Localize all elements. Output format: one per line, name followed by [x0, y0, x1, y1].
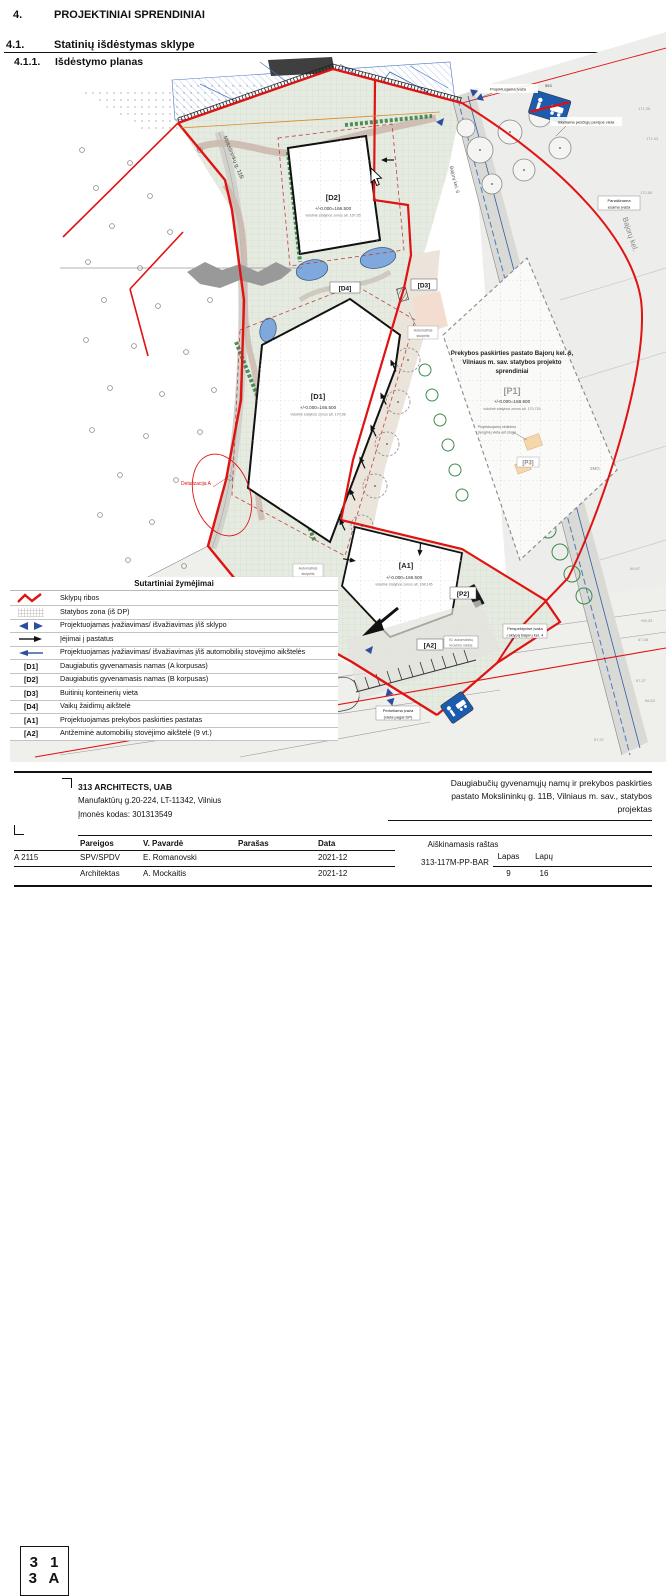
svg-text:[P3]: [P3]	[522, 461, 533, 467]
company-logo: 3 1 3 A	[20, 1546, 69, 1596]
svg-text:[D1]: [D1]	[311, 392, 326, 401]
doc-type: Aiškinamasis raštas	[390, 840, 536, 849]
svg-text:sprendiniai: sprendiniai	[495, 368, 528, 375]
svg-text:Projektuojama įvaža: Projektuojama įvaža	[490, 87, 527, 92]
doc-code: 313-117M-PP-BAR	[395, 858, 515, 867]
single-arrow-icon	[10, 649, 52, 657]
project-title-rule	[388, 820, 652, 821]
svg-text:+/-0.000=166.500: +/-0.000=166.500	[300, 405, 337, 410]
legend-item-d3: [D3] Buitinių konteinerių vieta	[10, 687, 338, 701]
svg-text:vidutinė statybos zonos alt. 1: vidutinė statybos zonos alt. 170,715	[483, 407, 540, 411]
project-title-line2: pastato Mokslininkų g. 11B, Vilniaus m. …	[330, 791, 652, 801]
logo-bracket	[14, 825, 24, 835]
lapu-value: 16	[527, 869, 561, 878]
title-block: 3 1 3 A 313 ARCHITECTS, UAB Manufaktūrų …	[0, 764, 666, 899]
svg-text:stulpelis: stulpelis	[417, 334, 430, 338]
svg-text:vidutinė statybos zonos alt. 1: vidutinė statybos zonos alt. 168,145	[375, 583, 432, 587]
company-name: 313 ARCHITECTS, UAB	[78, 782, 172, 792]
svg-text:Prekybos paskirties pastato Ba: Prekybos paskirties pastato Bajorų kel. …	[451, 350, 574, 357]
legend-title: Sutartiniai žymėjimai	[10, 577, 338, 591]
svg-text:66,53: 66,53	[645, 698, 656, 703]
project-title-line1: Daugiabučių gyvenamųjų namų ir prekybos …	[330, 778, 652, 788]
svg-text:[A1]: [A1]	[399, 561, 414, 570]
row1-pavarde: E. Romanovski	[143, 853, 197, 862]
svg-text:esama įvaža: esama įvaža	[608, 205, 631, 210]
svg-text:įrenginių vieta ant stogo: įrenginių vieta ant stogo	[478, 431, 516, 435]
logo-bracket	[62, 778, 72, 788]
legend-item-access: Projektuojamas įvažiavimas/ išvažiavimas…	[10, 620, 338, 634]
legend-item-d4: [D4] Vaikų žaidimų aikštelė	[10, 701, 338, 715]
row1-pareigos: SPV/SPDV	[80, 853, 120, 862]
project-title-line3: projektas	[330, 804, 652, 814]
lapu-label: Lapų	[527, 852, 561, 861]
legend: Sutartiniai žymėjimai Sklypų ribos Staty…	[10, 577, 338, 741]
svg-text:+/-0.000=166.500: +/-0.000=166.500	[494, 399, 531, 404]
svg-text:Projektuojamų vėdinimo: Projektuojamų vėdinimo	[478, 425, 516, 429]
svg-text:El. automobilių: El. automobilių	[449, 638, 473, 642]
svg-text:67,38: 67,38	[638, 637, 649, 642]
row2-pavarde: A. Mockaitis	[143, 869, 186, 878]
svg-text:krovimo vietos: krovimo vietos	[450, 644, 473, 648]
svg-text:+/-0.000=166.500: +/-0.000=166.500	[315, 206, 352, 211]
svg-text:stulpelis: stulpelis	[302, 572, 315, 576]
svg-text:2MG: 2MG	[590, 466, 600, 471]
boundary-zigzag-icon	[10, 592, 52, 604]
svg-text:+69,33: +69,33	[640, 618, 653, 623]
svg-text:171,06: 171,06	[638, 106, 651, 111]
titleblock-top-rule	[14, 771, 652, 773]
detail-callout-label: Detalizacija A	[181, 481, 212, 487]
svg-text:[P1]: [P1]	[503, 386, 520, 396]
svg-text:[D4]: [D4]	[339, 286, 352, 293]
legend-item-a2: [A2] Antžeminė automobilių stovėjimo aik…	[10, 728, 338, 742]
svg-text:[D3]: [D3]	[418, 283, 431, 290]
legend-item-boundary: Sklypų ribos	[10, 591, 338, 606]
row1-data: 2021-12	[318, 853, 347, 862]
svg-text:[A2]: [A2]	[424, 643, 437, 650]
company-address: Manufaktūrų g.20-224, LT-11342, Vilnius	[78, 796, 221, 805]
svg-text:(vieta pagal DP): (vieta pagal DP)	[384, 715, 413, 720]
entrance-arrow-icon	[10, 635, 52, 643]
svg-text:į sklypą Bajorų kel. 4: į sklypą Bajorų kel. 4	[507, 633, 544, 638]
row2-pareigos: Architektas	[80, 869, 120, 878]
construction-zone-icon	[10, 608, 52, 617]
svg-text:Panaikinama: Panaikinama	[607, 198, 631, 203]
col-parasas: Parašas	[238, 839, 269, 848]
svg-text:[D2]: [D2]	[326, 193, 341, 202]
street-label-bajoru6: Bajorų kel. 6	[448, 166, 461, 195]
svg-text:69,87: 69,87	[630, 566, 641, 571]
svg-text:67,27: 67,27	[636, 678, 647, 683]
svg-text:Perspektyvinė įvaža: Perspektyvinė įvaža	[507, 626, 543, 631]
col-pareigos: Pareigos	[80, 839, 114, 848]
svg-text:Iškeliama pėsčiųjų perėjos vie: Iškeliama pėsčiųjų perėjos vieta	[558, 120, 615, 125]
legend-item-a1: [A1] Projektuojamas prekybos paskirties …	[10, 714, 338, 728]
svg-text:vidutinė statybos zonos alt. 1: vidutinė statybos zonos alt. 170,98	[290, 413, 345, 417]
legend-item-parking-access: Projektuojamas įvažiavimas/ išvažiavimas…	[10, 647, 338, 661]
titleblock-bottom-rule	[14, 885, 652, 887]
svg-text:Automatinis: Automatinis	[299, 567, 318, 571]
col-pavarde: V. Pavardė	[143, 839, 183, 848]
cert-number: A 2115	[14, 853, 38, 862]
svg-text:171,03: 171,03	[646, 136, 659, 141]
legend-item-d1: [D1] Daugiabutis gyvenamasis namas (A ko…	[10, 660, 338, 674]
svg-text:553: 553	[545, 83, 552, 88]
svg-text:Vilniaus m. sav. statybos proj: Vilniaus m. sav. statybos projekto	[462, 359, 561, 366]
svg-text:Automatinis: Automatinis	[414, 329, 433, 333]
legend-item-zone: Statybos zona (iš DP)	[10, 606, 338, 620]
table-rule	[78, 835, 652, 836]
svg-text:170,65: 170,65	[640, 190, 653, 195]
table-rule	[493, 866, 652, 867]
row2-data: 2021-12	[318, 869, 347, 878]
svg-text:[P2]: [P2]	[457, 591, 469, 598]
legend-item-d2: [D2] Daugiabutis gyvenamasis namas (B ko…	[10, 674, 338, 688]
svg-text:+/-0.000=166.500: +/-0.000=166.500	[386, 575, 423, 580]
svg-text:67,37: 67,37	[594, 737, 605, 742]
svg-text:Perkeliama įvaža: Perkeliama įvaža	[383, 708, 414, 713]
double-arrow-icon	[10, 621, 52, 631]
company-code: Įmonės kodas: 301313549	[78, 810, 172, 819]
table-rule	[14, 866, 395, 867]
col-data: Data	[318, 839, 335, 848]
svg-text:vidutinė statybos zonos alt. 1: vidutinė statybos zonos alt. 167,05	[305, 214, 360, 218]
legend-item-entrances: Įėjimai į pastatus	[10, 633, 338, 647]
table-rule	[14, 850, 395, 851]
lapas-value: 9	[490, 869, 527, 878]
